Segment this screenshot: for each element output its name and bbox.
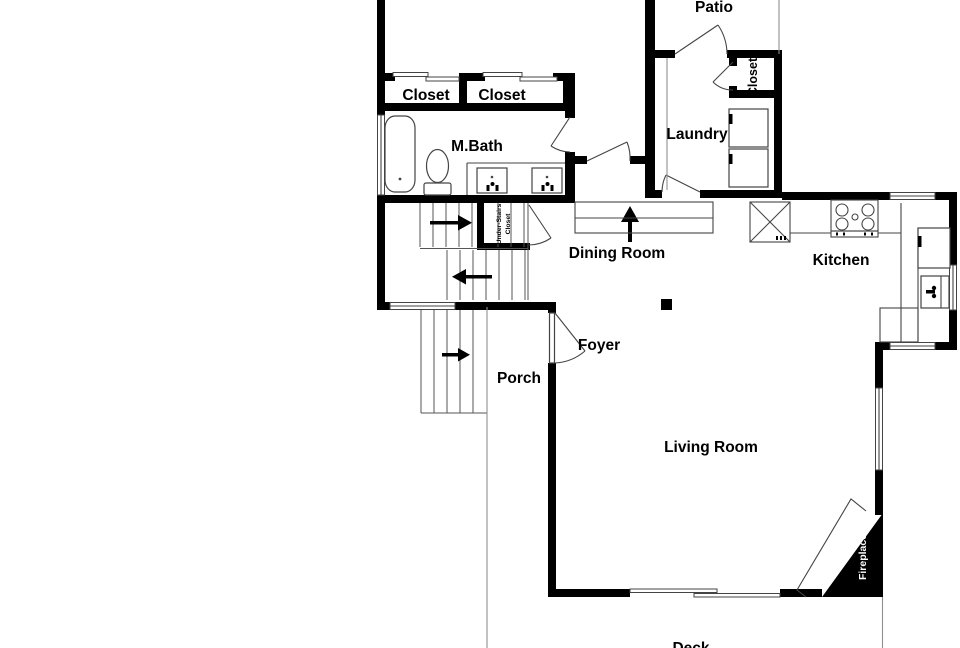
dining-counter (575, 202, 713, 233)
understairs-closet-door (529, 205, 551, 245)
closet2-label: Closet (478, 87, 525, 104)
closet1-label: Closet (402, 87, 449, 104)
living-slider-door (630, 589, 780, 597)
column-post (661, 299, 672, 310)
floor-plan: Patio Closet Closet M.Bath Laundry Close… (0, 0, 960, 648)
closet1-slider (393, 73, 459, 82)
stove (831, 200, 878, 237)
entry-steps-arrow-right (442, 348, 470, 362)
mbath-label: M.Bath (451, 138, 503, 155)
laundry-closet-label: Closet (746, 57, 760, 96)
room-labels: Patio Closet Closet M.Bath Laundry Close… (402, 0, 869, 648)
porch-steps (421, 310, 487, 413)
porch-label: Porch (497, 370, 541, 387)
dining-label: Dining Room (569, 245, 665, 262)
exterior-lines (487, 0, 883, 648)
kitchen-peninsula (880, 308, 918, 342)
toilet (424, 150, 451, 196)
laundry-closet-door (713, 62, 733, 90)
kitchen-bottom-window (890, 343, 935, 350)
understairs-label-2: Closet (505, 213, 512, 235)
stairhall-window (390, 303, 455, 310)
refrigerator (918, 228, 950, 268)
mbath-door (551, 117, 570, 152)
living-right-window (876, 388, 883, 470)
fireplace-label: Fireplace (857, 534, 869, 580)
stair-up-arrow-right (430, 215, 472, 231)
fireplace-mass (822, 513, 883, 597)
kitchen-counter-lines (790, 203, 918, 342)
sink-left (477, 168, 507, 193)
foyer-label: Foyer (578, 337, 620, 354)
living-label: Living Room (664, 439, 758, 456)
washer (729, 109, 768, 147)
laundry-label: Laundry (666, 126, 728, 143)
dining-up-arrow (621, 206, 639, 242)
kitchen-sink (921, 276, 949, 308)
hall-door (587, 142, 630, 161)
mbath-window (378, 115, 385, 195)
kitchen-label: Kitchen (813, 252, 870, 269)
kitchen-xbox-cabinet (750, 202, 790, 242)
dryer (729, 149, 768, 187)
bathtub (385, 116, 415, 192)
understairs-label-1: Under-Stairs (496, 203, 503, 244)
laundry-door (662, 175, 700, 192)
closet2-slider (483, 73, 557, 82)
floor-plan-svg: Patio Closet Closet M.Bath Laundry Close… (0, 0, 960, 648)
patio-door (675, 25, 727, 54)
bathroom-vanity (467, 163, 565, 195)
kitchen-right-window (950, 265, 957, 310)
sink-right (532, 168, 562, 193)
deck-label: Deck (672, 640, 709, 648)
kitchen-top-window (890, 193, 935, 200)
patio-label: Patio (695, 0, 733, 16)
